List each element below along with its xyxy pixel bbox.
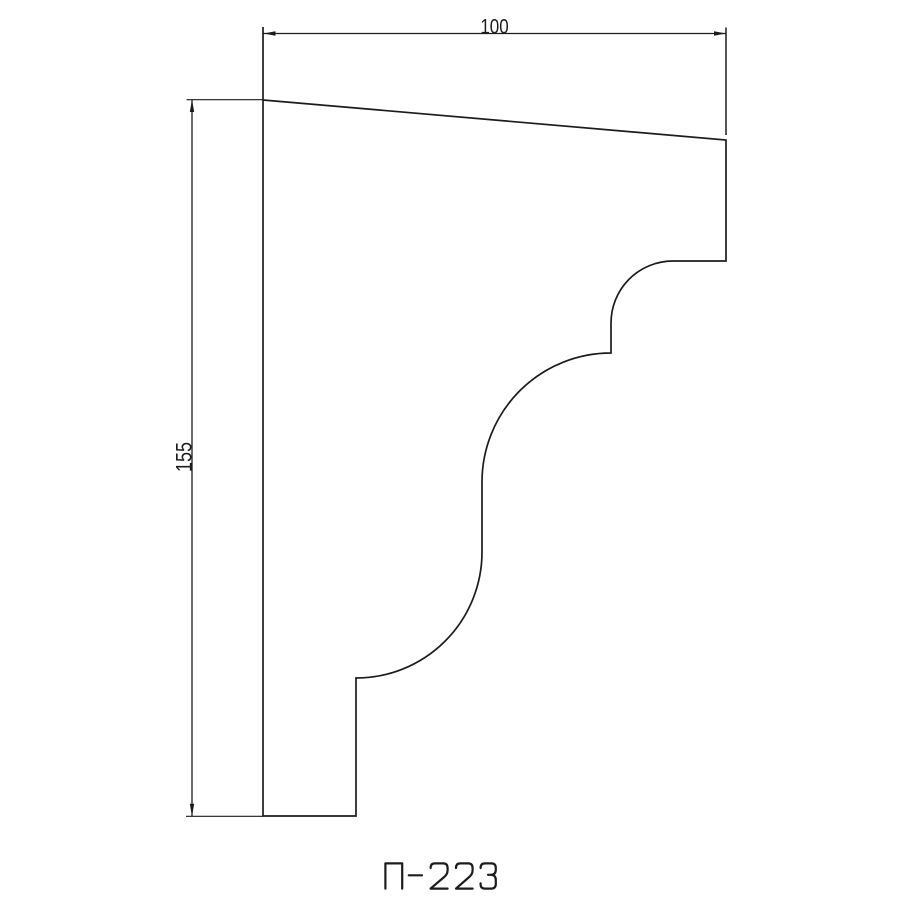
svg-text:100: 100 [480,15,508,38]
svg-text:155: 155 [172,442,197,472]
